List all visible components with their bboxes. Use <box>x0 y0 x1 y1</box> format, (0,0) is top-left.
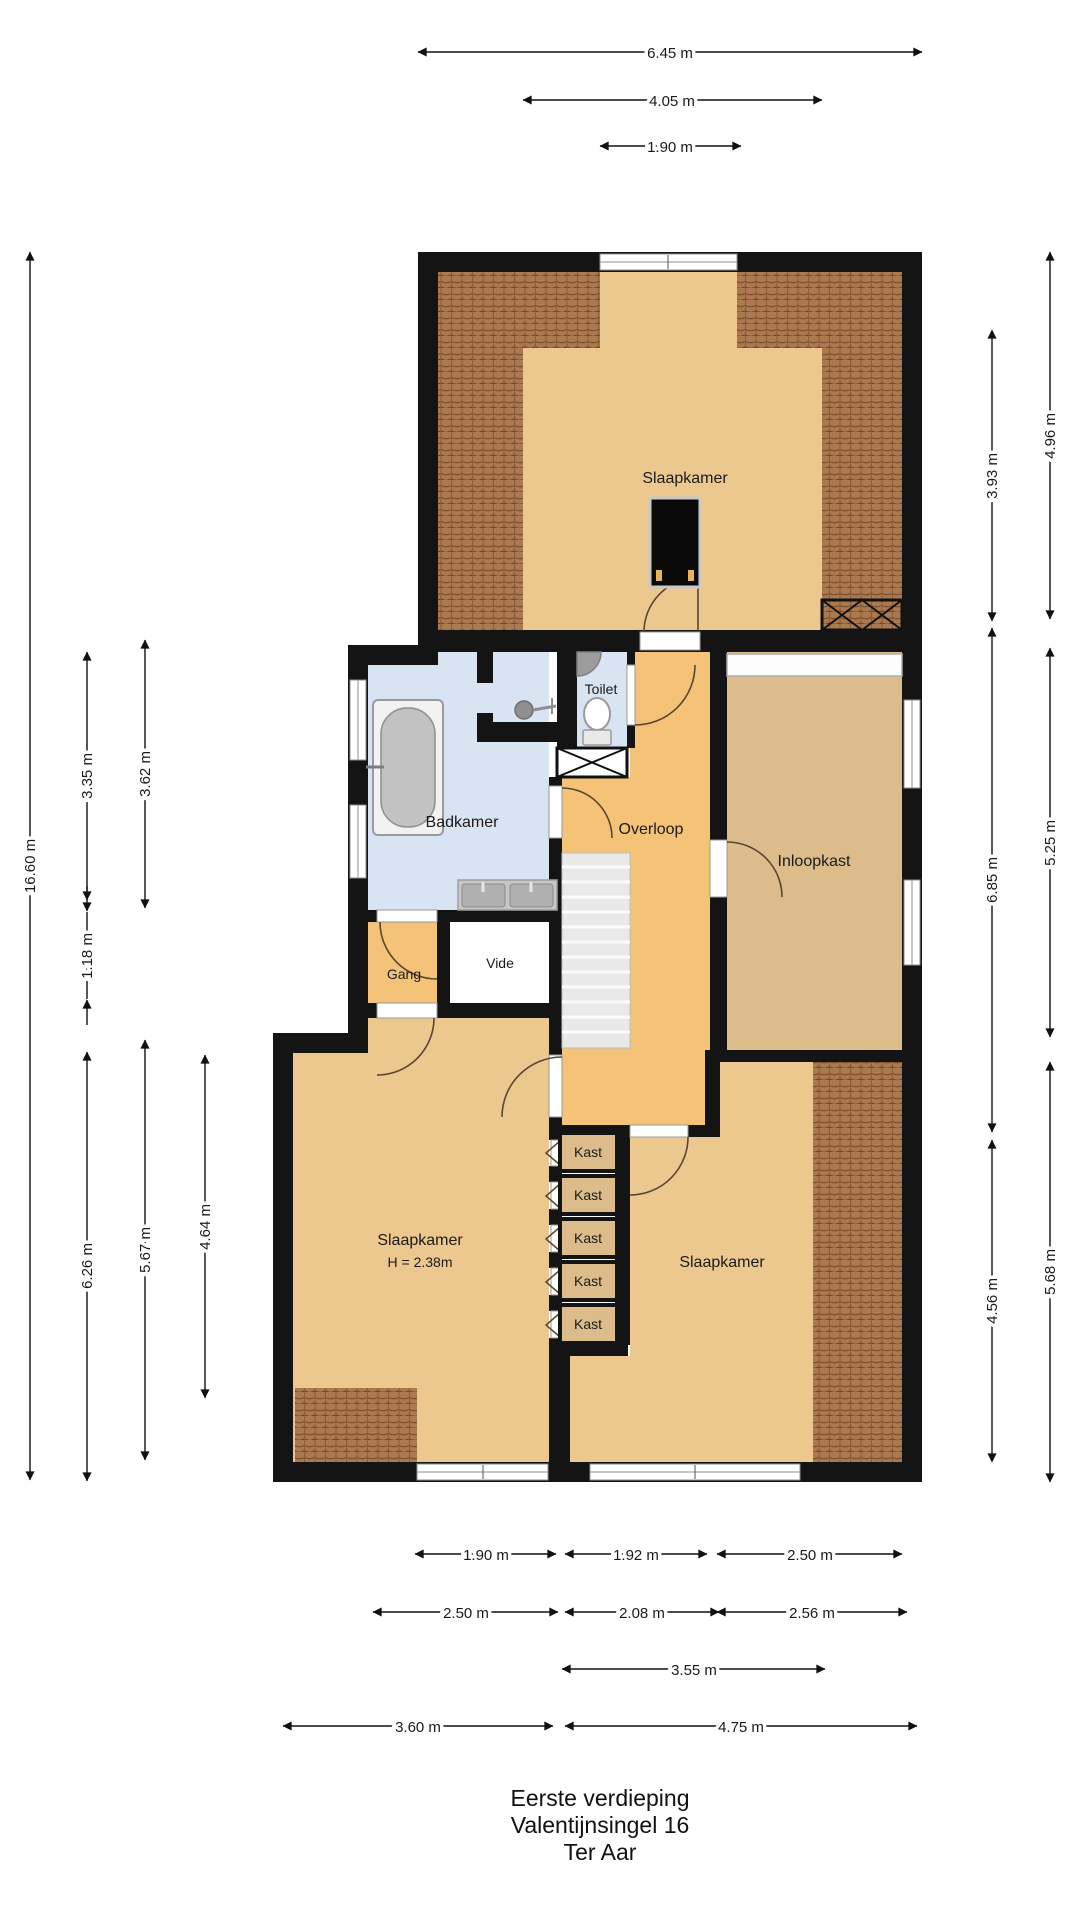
door-opening-toilet <box>627 665 635 725</box>
hallway-floor <box>368 922 437 1003</box>
dim-b2-250: 2.50 m <box>443 1605 489 1622</box>
wall-right <box>902 252 922 1482</box>
kast-label-3: Kast <box>574 1230 602 1246</box>
dim-b1-192: 1.92 m <box>613 1547 659 1564</box>
kast-label-1: Kast <box>574 1144 602 1160</box>
window-closet-lower <box>904 880 920 965</box>
toilet-label: Toilet <box>585 681 618 697</box>
walk-in-closet-floor <box>727 652 902 1050</box>
dim-right-393: 3.93 m <box>984 453 1001 499</box>
hallway-label: Gang <box>387 966 421 982</box>
bathroom-label: Badkamer <box>426 814 500 831</box>
wall-closet-bottom <box>705 1050 922 1062</box>
toilet-fixture <box>583 698 611 745</box>
door-opening-hallway-top <box>377 910 437 922</box>
roof-tiles-bottom-left <box>295 1388 417 1462</box>
window-bottom-left <box>417 1464 548 1480</box>
dim-right-456: 4.56 m <box>984 1278 1001 1324</box>
dim-left-118: 1.18 m <box>79 933 96 979</box>
kast-label-4: Kast <box>574 1273 602 1289</box>
window-closet-upper <box>904 700 920 788</box>
floorplan-drawing: Slaapkamer Badkamer Toilet Overloop Inlo… <box>0 0 1080 1920</box>
landing-label: Overloop <box>619 821 684 838</box>
dim-left-362: 3.62 m <box>137 751 154 797</box>
wall-toilet-left <box>557 652 577 748</box>
window-top <box>600 254 737 270</box>
title-city: Ter Aar <box>564 1839 637 1865</box>
window-bathroom-lower <box>350 805 366 878</box>
bedroom-left-height-label: H = 2.38m <box>388 1254 453 1270</box>
dim-right-496: 4.96 m <box>1042 413 1059 459</box>
roof-tiles-bottom-right <box>813 1062 902 1462</box>
door-opening-bedroom-left <box>549 1055 562 1117</box>
void-label: Vide <box>486 955 514 971</box>
title-address: Valentijnsingel 16 <box>511 1812 690 1838</box>
dim-b4-360: 3.60 m <box>395 1719 441 1736</box>
built-in-wardrobe <box>727 654 902 676</box>
hatched-vent-band <box>822 600 902 630</box>
dim-b1-190: 1.90 m <box>463 1547 509 1564</box>
plan-title: Eerste verdieping Valentijnsingel 16 Ter… <box>511 1785 690 1865</box>
dim-left-335: 3.35 m <box>79 753 96 799</box>
door-opening-bedroom-top <box>640 632 700 650</box>
bedroom-right-label: Slaapkamer <box>679 1254 765 1271</box>
wall-between-bedrooms <box>549 1356 570 1462</box>
wall-top-left <box>418 252 438 665</box>
door-opening-hallway-bottom <box>377 1003 437 1018</box>
dim-left-626: 6.26 m <box>79 1243 96 1289</box>
dim-left-1660: 16.60 m <box>22 839 39 893</box>
dim-left-464: 4.64 m <box>197 1204 214 1250</box>
chimney-block <box>650 498 700 587</box>
walk-in-closet-label: Inloopkast <box>778 853 851 870</box>
bedroom-left-label: Slaapkamer <box>377 1232 463 1249</box>
bedroom-top-label: Slaapkamer <box>642 470 728 487</box>
dim-b2-208: 2.08 m <box>619 1605 665 1622</box>
dim-b4-475: 4.75 m <box>718 1719 764 1736</box>
double-sink-fixture <box>458 880 557 910</box>
floorplan-page: Slaapkamer Badkamer Toilet Overloop Inlo… <box>0 0 1080 1920</box>
kast-label-5: Kast <box>574 1316 602 1332</box>
wall-hall-right <box>705 1050 720 1137</box>
wall-shower-stub-2 <box>477 713 493 742</box>
dim-top-405: 4.05 m <box>649 93 695 110</box>
dim-right-685: 6.85 m <box>984 857 1001 903</box>
wall-shower-stub-1 <box>477 652 493 683</box>
dim-top-645: 6.45 m <box>647 45 693 62</box>
stairs <box>562 853 630 1048</box>
dim-left-567: 5.67 m <box>137 1227 154 1273</box>
dim-b1-250: 2.50 m <box>787 1547 833 1564</box>
wall-bottom-left <box>273 1033 293 1482</box>
door-opening-bathroom <box>549 786 562 838</box>
window-bathroom-upper <box>350 680 366 760</box>
kast-label-2: Kast <box>574 1187 602 1203</box>
dim-b2-256: 2.56 m <box>789 1605 835 1622</box>
door-opening-bedroom-right <box>630 1125 688 1137</box>
dim-top-190: 1.90 m <box>647 139 693 156</box>
dim-b3-355: 3.55 m <box>671 1662 717 1679</box>
door-opening-closet <box>710 840 727 897</box>
dim-right-525: 5.25 m <box>1042 820 1059 866</box>
technical-shaft <box>557 748 627 777</box>
title-floor: Eerste verdieping <box>511 1785 690 1811</box>
wall-shower-stub-3 <box>493 722 557 742</box>
dim-right-568: 5.68 m <box>1042 1249 1059 1295</box>
window-bottom-right <box>590 1464 800 1480</box>
